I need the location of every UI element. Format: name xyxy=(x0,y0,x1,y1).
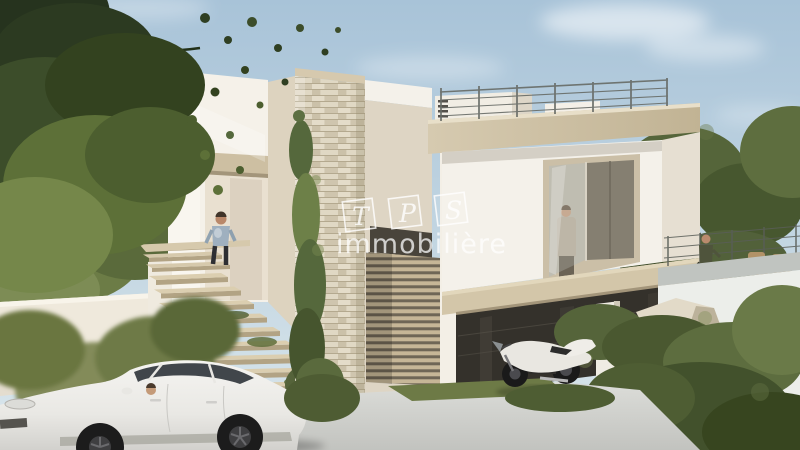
bush-at-car-tail xyxy=(284,374,360,422)
watermark-wordmark: immobilière xyxy=(336,229,507,260)
bush-in-front-of-motorcycle xyxy=(505,384,615,412)
villa-render-scene: T P S immobilière xyxy=(0,0,800,450)
architectural-rendering: T P S immobilière xyxy=(0,0,800,450)
car-headlight xyxy=(5,399,35,409)
side-wall-shaded xyxy=(268,76,295,330)
glass-door xyxy=(543,154,640,282)
watermark-letter-t: T xyxy=(352,202,371,231)
watermark-letter-s: S xyxy=(445,196,462,225)
watermark-letter-p: P xyxy=(398,199,417,228)
car-side-mirror xyxy=(122,388,133,395)
